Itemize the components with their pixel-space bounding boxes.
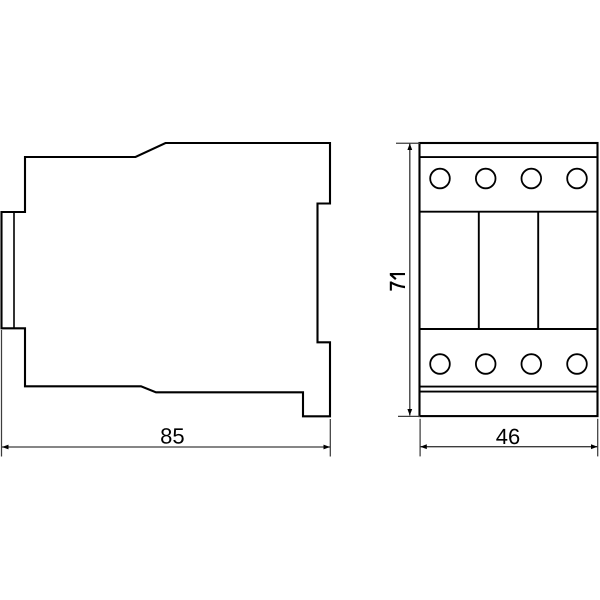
svg-text:46: 46 bbox=[496, 424, 520, 449]
svg-text:85: 85 bbox=[160, 424, 184, 449]
